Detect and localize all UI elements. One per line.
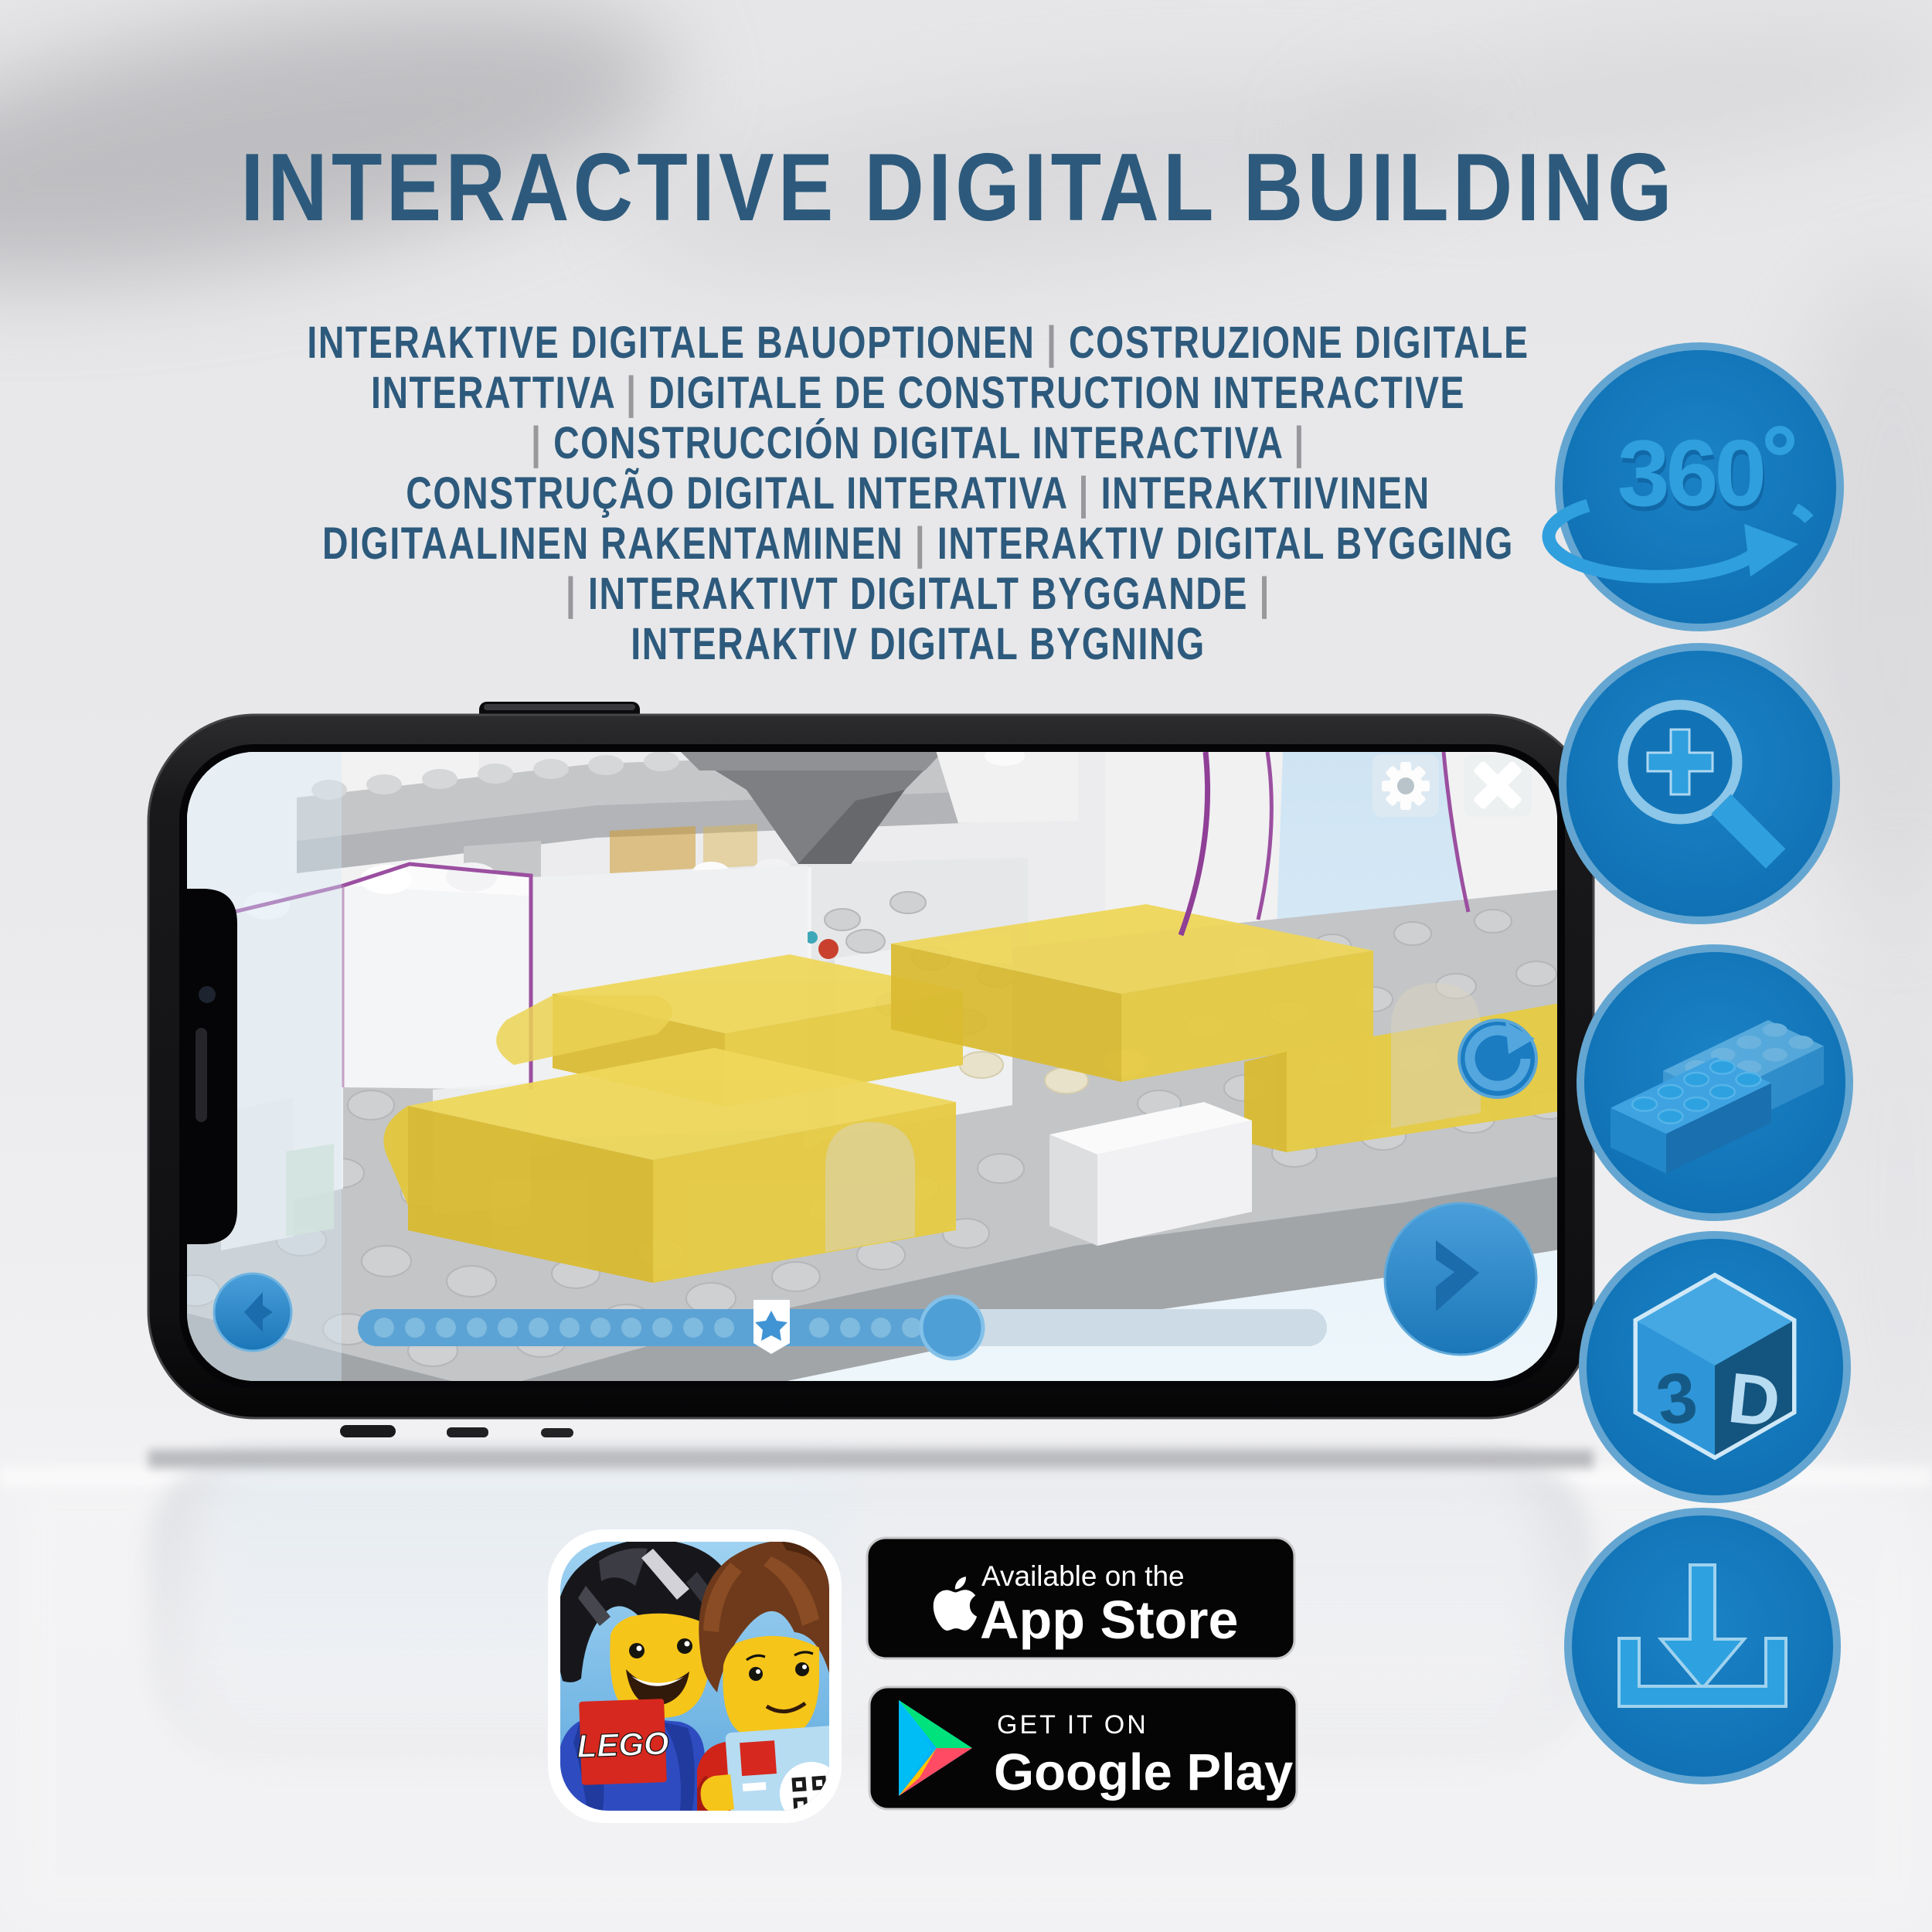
- svg-text:App Store: App Store: [980, 1590, 1238, 1650]
- svg-text:INTERAKTIV DIGITAL BYGNING: INTERAKTIV DIGITAL BYGNING: [631, 619, 1206, 669]
- svg-text:Google Play: Google Play: [994, 1743, 1293, 1801]
- svg-text:360: 360: [1617, 420, 1764, 526]
- svg-text:DIGITAALINEN RAKENTAMINEN | IN: DIGITAALINEN RAKENTAMINEN | INTERAKTIV D…: [322, 519, 1514, 569]
- svg-text:INTERACTIVE DIGITAL BUILDING: INTERACTIVE DIGITAL BUILDING: [240, 134, 1675, 241]
- svg-text:| CONSTRUCCIÓN DIGITAL INTERAC: | CONSTRUCCIÓN DIGITAL INTERACTIVA |: [531, 418, 1305, 468]
- svg-text:CONSTRUÇÃO DIGITAL INTERATIVA: CONSTRUÇÃO DIGITAL INTERATIVA | INTERAKT…: [406, 468, 1430, 519]
- svg-text:D: D: [1725, 1359, 1784, 1442]
- svg-text:| INTERAKTIVT DIGITALT BYGGAND: | INTERAKTIVT DIGITALT BYGGANDE |: [566, 569, 1270, 619]
- svg-text:Available on the: Available on the: [981, 1560, 1185, 1592]
- svg-text:INTERAKTIVE DIGITALE BAUOPTION: INTERAKTIVE DIGITALE BAUOPTIONEN | COSTR…: [307, 318, 1529, 368]
- svg-text:LEGO: LEGO: [577, 1725, 670, 1764]
- svg-text:INTERATTIVA | DIGITALE DE CONS: INTERATTIVA | DIGITALE DE CONSTRUCTION I…: [371, 368, 1465, 418]
- svg-text:GET IT ON: GET IT ON: [997, 1710, 1148, 1740]
